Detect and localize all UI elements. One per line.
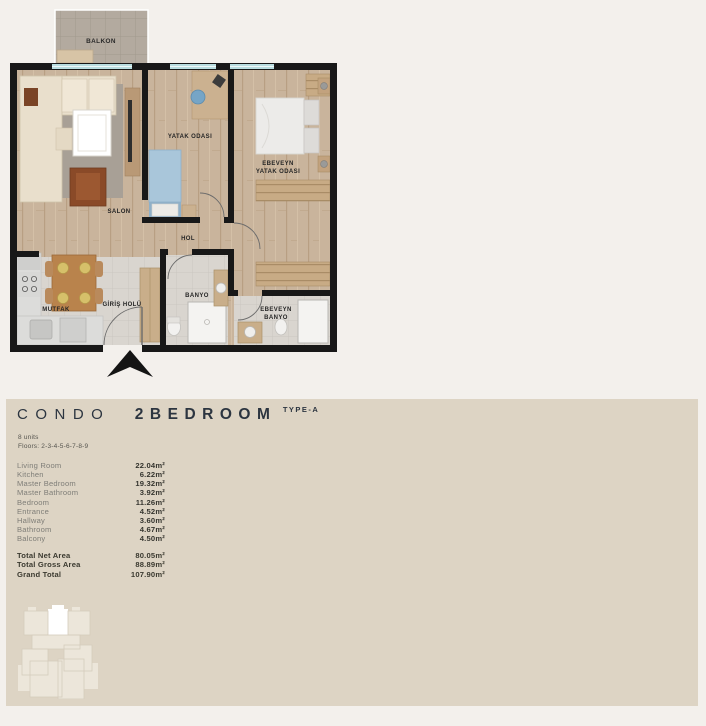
hall-label: HOL [181, 236, 195, 242]
sink-basin [245, 327, 256, 338]
plate [58, 293, 69, 304]
table-row: Entrance 4.52m² [17, 507, 165, 516]
floor-plan-drawing: BALKON [0, 0, 370, 392]
table-row: Master Bathroom 3.92m² [17, 488, 165, 497]
sink-basin [216, 283, 226, 293]
total-row: Total Gross Area 88.89m² [17, 560, 165, 569]
floors-list: Floors: 2-3-4-5-6-7-8-9 [18, 442, 88, 451]
living-room-furniture [20, 76, 140, 206]
dishwasher [60, 318, 86, 342]
toilet [275, 319, 287, 335]
master-bathroom-label-line1: EBEVEYN [260, 307, 291, 313]
master-bedroom-label-line2: YATAK ODASI [256, 169, 300, 175]
highlighted-unit [48, 609, 68, 635]
area-table: Living Room 22.04m² Kitchen 6.22m² Maste… [17, 461, 165, 543]
table-row: Balcony 4.50m² [17, 534, 165, 543]
master-pillow-1 [304, 100, 319, 125]
balcony-area: BALKON [55, 10, 148, 65]
totals-table: Total Net Area 80.05m² Total Gross Area … [17, 551, 165, 579]
title-type-badge: TYPE-A [283, 405, 320, 414]
tv-unit [125, 88, 140, 176]
chair [45, 288, 53, 304]
chair [45, 261, 53, 277]
master-pillow-2 [304, 128, 319, 153]
stove [18, 272, 40, 297]
unit-info-panel: CONDO 2BEDROOM TYPE-A 8 units Floors: 2-… [6, 399, 698, 706]
table-row: Master Bedroom 19.32m² [17, 479, 165, 488]
lamp-icon [321, 83, 328, 90]
nightstand [182, 205, 196, 218]
chair [95, 261, 103, 277]
dining-table [52, 255, 96, 311]
accent-pillow [24, 88, 38, 106]
table-row: Bedroom 11.26m² [17, 498, 165, 507]
table-row: Kitchen 6.22m² [17, 470, 165, 479]
total-row: Grand Total 107.90m² [17, 570, 165, 579]
title-bedrooms: 2BEDROOM [135, 406, 277, 423]
units-count: 8 units [18, 433, 88, 442]
balcony-label: BALKON [86, 38, 116, 45]
bed-duvet [149, 150, 181, 202]
total-row: Total Net Area 80.05m² [17, 551, 165, 560]
shower [298, 300, 328, 343]
bedroom-label: YATAK ODASI [168, 134, 212, 140]
master-bedroom-label-line1: EBEVEYN [262, 161, 293, 167]
shower [188, 302, 226, 343]
title-condo: CONDO [17, 406, 110, 423]
unit-meta: 8 units Floors: 2-3-4-5-6-7-8-9 [18, 433, 88, 451]
plate [58, 263, 69, 274]
living-room-label: SALON [108, 209, 131, 215]
entrance-arrow-icon [107, 350, 153, 377]
desk-chair [191, 90, 205, 104]
coffee-table [73, 110, 111, 156]
table-row: Hallway 3.60m² [17, 516, 165, 525]
kitchen-furniture [17, 253, 103, 345]
lamp-icon [321, 161, 328, 168]
plate [80, 293, 91, 304]
master-wardrobe-2 [256, 262, 330, 286]
entrance-hall-label: GİRİŞ HOLÜ [102, 301, 141, 308]
building-keyplan [18, 605, 98, 699]
master-wardrobe-1 [256, 180, 330, 201]
sink [30, 320, 52, 339]
unit-title: CONDO 2BEDROOM TYPE-A [17, 405, 319, 424]
table-row: Bathroom 4.67m² [17, 525, 165, 534]
balcony-bench [57, 50, 93, 63]
kitchen-label: MUTFAK [42, 307, 70, 313]
master-bathroom-label-line2: BANYO [264, 315, 288, 321]
fridge [18, 255, 40, 270]
floor-plan: BALKON [0, 0, 370, 392]
bed-pillow [152, 204, 178, 216]
side-table [56, 128, 72, 150]
table-row: Living Room 22.04m² [17, 461, 165, 470]
plate [80, 263, 91, 274]
tv [128, 100, 132, 162]
bathroom-label: BANYO [185, 293, 209, 299]
